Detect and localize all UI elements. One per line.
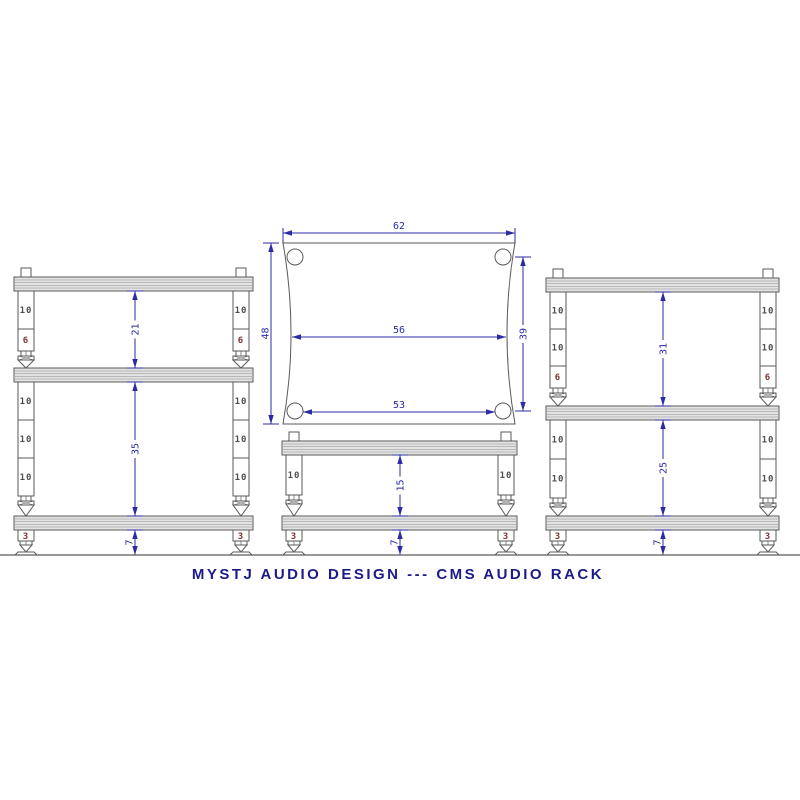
spike-cone <box>18 505 34 516</box>
post-section: 1010 <box>760 420 776 516</box>
post-segment-label: 6 <box>23 336 29 346</box>
post-stud <box>763 269 773 278</box>
post-segment-label: 10 <box>20 435 33 445</box>
dimension-label: 21 <box>131 323 142 335</box>
post-segment-label: 10 <box>235 397 248 407</box>
post-section: 10 <box>286 455 302 516</box>
post-segment-label: 10 <box>235 306 248 316</box>
spike-cone <box>498 504 514 516</box>
shelf <box>14 368 253 382</box>
post-segment-label: 10 <box>20 473 33 483</box>
post-segment-label: 10 <box>762 475 775 485</box>
leveling-foot: 3 <box>757 530 779 555</box>
dimension-label: 15 <box>396 479 407 491</box>
spike-cone <box>550 397 566 406</box>
spike-coupler <box>286 495 302 516</box>
dimension: 15 <box>392 455 408 516</box>
post-segment-label: 10 <box>235 435 248 445</box>
dimension-label: 31 <box>659 343 670 355</box>
post-segment-label: 10 <box>762 436 775 446</box>
spike-cone <box>20 545 32 552</box>
dimension: 48 <box>261 243 280 424</box>
dimension: 7 <box>653 530 672 555</box>
post-section: 10106 <box>760 292 776 406</box>
shelf <box>546 516 779 530</box>
dimension: 62 <box>283 221 515 243</box>
spike-cone <box>233 360 249 368</box>
leveling-foot: 3 <box>547 530 569 555</box>
center-low-rack-front-view: 103103157 <box>282 432 517 555</box>
shelf <box>14 277 253 291</box>
post-segment-label: 10 <box>20 397 33 407</box>
post-segment-label: 10 <box>500 471 513 481</box>
dimension-label: 7 <box>125 539 136 545</box>
post-stud <box>21 268 31 277</box>
spike-cone <box>760 507 776 516</box>
post-section: 10106 <box>550 292 566 406</box>
post-hole <box>495 403 511 419</box>
post-section: 10 <box>498 455 514 516</box>
post-segment-label: 10 <box>552 436 565 446</box>
post-hole <box>495 249 511 265</box>
dimension-label: 62 <box>393 221 405 232</box>
spike-cone <box>762 545 774 552</box>
post-hole <box>287 249 303 265</box>
post-segment-label: 6 <box>555 373 561 383</box>
dimension-label: 56 <box>393 325 405 336</box>
dimension: 39 <box>515 257 531 411</box>
spike-cone <box>550 507 566 516</box>
post-stud <box>553 269 563 278</box>
dimension-label: 25 <box>659 462 670 474</box>
shelf <box>546 278 779 292</box>
spike-coupler <box>760 498 776 516</box>
dimension: 25 <box>655 420 671 516</box>
dimension-label: 39 <box>519 328 530 340</box>
post-segment-label: 10 <box>552 344 565 354</box>
dimension: 35 <box>127 382 143 516</box>
post-section: 1010 <box>550 420 566 516</box>
post-section: 101010 <box>233 382 249 516</box>
drawing-title: MYSTJ AUDIO DESIGN --- CMS AUDIO RACK <box>192 566 604 583</box>
spike-cone <box>760 397 776 406</box>
post-segment-label: 10 <box>762 307 775 317</box>
leveling-foot: 3 <box>495 530 517 555</box>
dimension-label: 53 <box>393 400 405 411</box>
technical-drawing: 1061010103106101010321357101061010310106… <box>0 0 800 800</box>
post-segment-label: 10 <box>552 307 565 317</box>
post-stud <box>501 432 511 441</box>
post-stud <box>289 432 299 441</box>
shelf <box>14 516 253 530</box>
shelf <box>282 441 517 455</box>
post-hole <box>287 403 303 419</box>
dimension: 31 <box>655 292 671 406</box>
spike-coupler <box>498 495 514 516</box>
spike-cone <box>500 545 512 552</box>
spike-cone <box>235 545 247 552</box>
left-rack-front-view: 1061010103106101010321357 <box>14 268 253 555</box>
post-section: 106 <box>18 291 34 368</box>
dimension: 21 <box>127 291 143 368</box>
spike-coupler <box>233 351 249 368</box>
spike-cone <box>552 545 564 552</box>
post-segment-label: 10 <box>235 473 248 483</box>
spike-cone <box>18 360 34 368</box>
spike-coupler <box>233 496 249 516</box>
spike-coupler <box>550 388 566 406</box>
spike-coupler <box>760 388 776 406</box>
spike-cone <box>286 504 302 516</box>
post-stud <box>236 268 246 277</box>
post-segment-label: 10 <box>20 306 33 316</box>
dimension: 7 <box>390 530 409 555</box>
dimension: 7 <box>125 530 144 555</box>
post-section: 101010 <box>18 382 34 516</box>
post-section: 106 <box>233 291 249 368</box>
leveling-foot: 3 <box>283 530 305 555</box>
leveling-foot: 3 <box>230 530 252 555</box>
right-rack-front-view: 1010610103101061010331257 <box>546 269 779 555</box>
spike-coupler <box>18 351 34 368</box>
spike-coupler <box>550 498 566 516</box>
spike-coupler <box>18 496 34 516</box>
dimension-label: 48 <box>261 327 272 339</box>
dimension-label: 35 <box>131 443 142 455</box>
post-segment-label: 10 <box>288 471 301 481</box>
post-segment-label: 6 <box>238 336 244 346</box>
shelf-top-view: 6256534839 <box>261 221 532 424</box>
post-segment-label: 10 <box>552 475 565 485</box>
leveling-foot: 3 <box>15 530 37 555</box>
shelf <box>546 406 779 420</box>
dimension-label: 7 <box>390 539 401 545</box>
post-segment-label: 6 <box>765 373 771 383</box>
dimension-label: 7 <box>653 539 664 545</box>
spike-cone <box>288 545 300 552</box>
shelf <box>282 516 517 530</box>
post-segment-label: 10 <box>762 344 775 354</box>
spike-cone <box>233 505 249 516</box>
